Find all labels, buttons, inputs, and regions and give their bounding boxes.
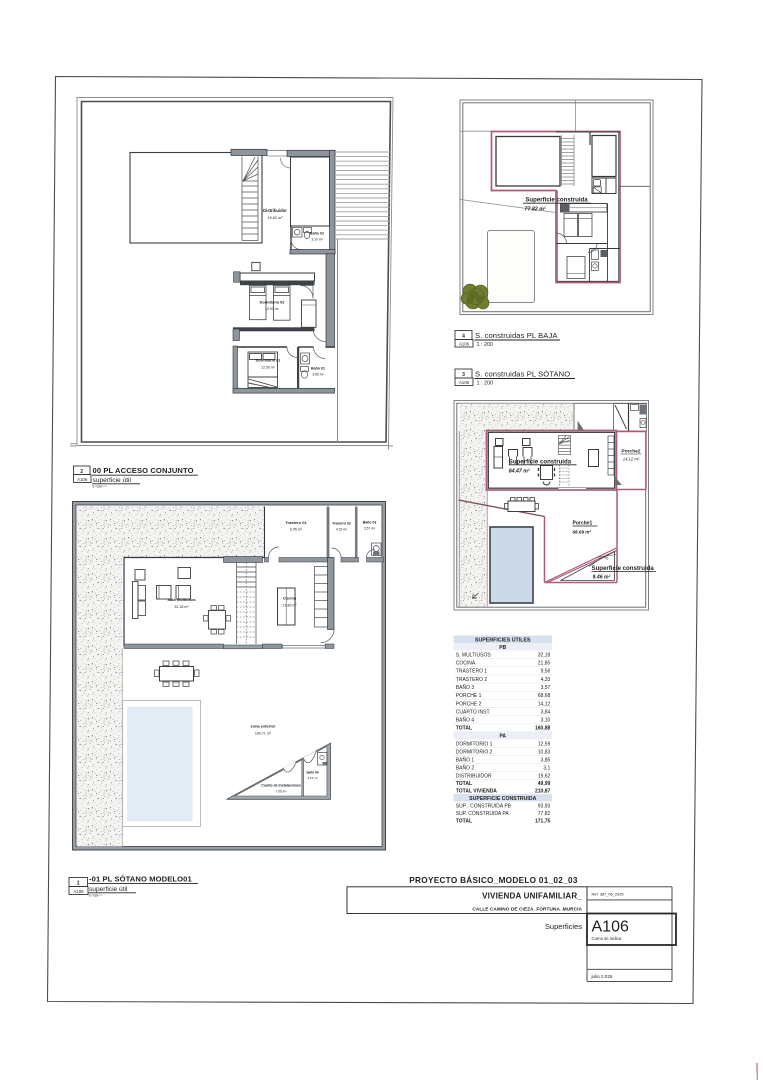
- svg-text:Cocina: Cocina: [283, 596, 297, 601]
- svg-text:PA: PA: [499, 733, 506, 739]
- svg-text:7.06 m²: 7.06 m²: [276, 790, 287, 794]
- svg-text:14,12: 14,12: [538, 701, 551, 707]
- svg-text:Distribuidor: Distribuidor: [263, 208, 287, 213]
- svg-text:TOTAL: TOTAL: [456, 725, 472, 731]
- svg-text:BAÑO 1: BAÑO 1: [456, 756, 475, 763]
- svg-text:baño 04: baño 04: [306, 771, 318, 775]
- svg-text:3: 3: [462, 372, 465, 378]
- svg-text:Dormitorio 01: Dormitorio 01: [256, 359, 281, 363]
- svg-text:S. MULTIUSOS: S. MULTIUSOS: [456, 652, 492, 658]
- svg-text:4.33 m²: 4.33 m²: [336, 528, 348, 532]
- svg-text:1 : 125: 1 : 125: [93, 485, 103, 489]
- svg-text:DORMITORIO 1: DORMITORIO 1: [456, 741, 493, 747]
- svg-text:TRASTERO 2: TRASTERO 2: [456, 677, 488, 683]
- svg-text:TOTAL: TOTAL: [456, 819, 472, 825]
- svg-text:32,18: 32,18: [538, 652, 551, 658]
- svg-text:2: 2: [80, 469, 83, 475]
- svg-text:9.95 m²: 9.95 m²: [290, 528, 303, 532]
- svg-text:Porche2: Porche2: [622, 449, 641, 455]
- svg-text:12,59: 12,59: [538, 741, 551, 747]
- svg-text:A106: A106: [592, 919, 629, 936]
- svg-text:julio 2,025: julio 2,025: [591, 974, 613, 979]
- svg-text:49,99: 49,99: [538, 781, 551, 787]
- svg-text:DISTRIBUIDOR: DISTRIBUIDOR: [456, 773, 492, 779]
- svg-text:SUP. CONSTRUIDA PA: SUP. CONSTRUIDA PA: [456, 811, 510, 817]
- svg-text:BAÑO 3: BAÑO 3: [456, 684, 475, 691]
- svg-text:171,75: 171,75: [535, 819, 551, 825]
- svg-text:Superficies: Superficies: [545, 922, 582, 931]
- svg-text:superficie útil: superficie útil: [93, 477, 132, 484]
- svg-text:Superficie construida: Superficie construida: [525, 196, 588, 203]
- svg-text:19.62 m²: 19.62 m²: [268, 216, 284, 220]
- svg-text:12.59 m²: 12.59 m²: [261, 366, 275, 370]
- svg-text:1 : 200: 1 : 200: [477, 381, 494, 387]
- svg-text:210,87: 210,87: [535, 788, 551, 794]
- svg-text:Baño 01: Baño 01: [311, 367, 325, 371]
- svg-text:PROYECTO BÁSICO_MODELO 01_02_0: PROYECTO BÁSICO_MODELO 01_02_03: [409, 875, 578, 885]
- svg-text:1 : 125: 1 : 125: [89, 894, 99, 898]
- svg-text:Superficie construida: Superficie construida: [509, 458, 572, 465]
- svg-text:PB: PB: [499, 645, 506, 651]
- svg-text:19,62: 19,62: [538, 773, 551, 779]
- svg-text:S. construidas PL BAJA: S. construidas PL BAJA: [475, 331, 558, 340]
- svg-text:14.12 m²: 14.12 m²: [623, 457, 640, 462]
- svg-text:3,1: 3,1: [543, 765, 550, 771]
- svg-text:TOTAL VIVIENDA: TOTAL VIVIENDA: [456, 788, 498, 794]
- svg-text:3.57 m²: 3.57 m²: [364, 527, 376, 531]
- svg-text:68.69 m²: 68.69 m²: [573, 530, 592, 535]
- svg-text:TOTAL: TOTAL: [456, 781, 472, 787]
- svg-text:COCINA: COCINA: [456, 661, 476, 667]
- svg-text:Como se indica: Como se indica: [592, 936, 622, 941]
- svg-text:10,83: 10,83: [538, 749, 551, 755]
- svg-text:3.10 m²: 3.10 m²: [311, 238, 323, 242]
- svg-text:77,82: 77,82: [538, 811, 551, 817]
- svg-text:93,93: 93,93: [538, 803, 551, 809]
- svg-text:zona exterior: zona exterior: [251, 724, 276, 729]
- svg-text:DORMITORIO 2: DORMITORIO 2: [456, 749, 493, 755]
- svg-text:10.93 m²: 10.93 m²: [265, 307, 279, 311]
- svg-text:Cuarto de Instalaciones: Cuarto de Instalaciones: [261, 784, 301, 788]
- svg-text:S. construidas PL SÓTANO: S. construidas PL SÓTANO: [475, 370, 570, 379]
- svg-text:A106: A106: [459, 380, 470, 385]
- svg-text:3,85: 3,85: [541, 757, 551, 763]
- svg-text:32.18 m²: 32.18 m²: [174, 605, 189, 609]
- svg-text:A106: A106: [77, 477, 88, 482]
- svg-text:Trastero 02: Trastero 02: [332, 522, 351, 526]
- svg-text:superficie útil: superficie útil: [89, 886, 128, 893]
- svg-text:160,88: 160,88: [535, 725, 551, 731]
- svg-text:A106: A106: [459, 341, 470, 346]
- svg-text:3,57: 3,57: [541, 685, 551, 691]
- svg-text:SUPERFICIES ÚTILES: SUPERFICIES ÚTILES: [475, 636, 531, 643]
- svg-text:189.71 m²: 189.71 m²: [255, 732, 272, 736]
- svg-text:VIVIENDA UNIFAMILIAR_: VIVIENDA UNIFAMILIAR_: [482, 891, 582, 900]
- svg-text:SUP . CONSTRUIDA PB: SUP . CONSTRUIDA PB: [456, 803, 512, 809]
- svg-text:3.85 m²: 3.85 m²: [312, 373, 324, 377]
- svg-text:9.46 m²: 9.46 m²: [593, 575, 611, 581]
- svg-text:Ref: 387_06_2025: Ref: 387_06_2025: [592, 891, 624, 896]
- svg-text:68,68: 68,68: [538, 693, 551, 699]
- svg-text:Trastero 01: Trastero 01: [285, 520, 307, 525]
- svg-text:3.16 m²: 3.16 m²: [307, 776, 317, 780]
- svg-text:TRASTERO 1: TRASTERO 1: [456, 669, 488, 675]
- svg-text:Baño 03: Baño 03: [363, 521, 377, 525]
- svg-text:3,84: 3,84: [541, 709, 551, 715]
- svg-text:CUARTO INST.: CUARTO INST.: [456, 709, 491, 715]
- svg-text:4,33: 4,33: [541, 677, 551, 683]
- svg-text:3,10: 3,10: [541, 718, 551, 724]
- svg-text:21,85: 21,85: [538, 661, 551, 667]
- svg-text:21.85 m²: 21.85 m²: [282, 604, 297, 608]
- svg-text:00 PL ACCESO CONJUNTO: 00 PL ACCESO CONJUNTO: [93, 466, 194, 475]
- svg-text:PORCHE 1: PORCHE 1: [456, 693, 482, 699]
- svg-text:Sala multiusos: Sala multiusos: [167, 597, 196, 602]
- svg-text:1 : 200: 1 : 200: [477, 342, 494, 348]
- svg-text:A106: A106: [73, 889, 84, 894]
- svg-text:Dormitorio 02: Dormitorio 02: [260, 301, 285, 305]
- svg-text:77.82 m²: 77.82 m²: [525, 207, 546, 213]
- svg-text:Baño 02: Baño 02: [310, 232, 324, 236]
- svg-text:PORCHE 2: PORCHE 2: [456, 701, 482, 707]
- svg-text:-01 PL SÓTANO MODELO01: -01 PL SÓTANO MODELO01: [89, 875, 192, 884]
- svg-text:SUPERFICIE CONSTRUIDA: SUPERFICIE CONSTRUIDA: [469, 796, 536, 802]
- svg-text:BAÑO 2: BAÑO 2: [456, 764, 475, 771]
- svg-text:Porche1: Porche1: [573, 521, 593, 527]
- svg-text:BAÑO 4: BAÑO 4: [456, 717, 475, 724]
- svg-text:1: 1: [77, 881, 80, 887]
- svg-text:CALLE CAMINO DE CIEZA_FORTUNA_: CALLE CAMINO DE CIEZA_FORTUNA_MURCIA: [472, 906, 582, 911]
- svg-text:9,56: 9,56: [541, 669, 551, 675]
- svg-text:84.47 m²: 84.47 m²: [509, 468, 530, 474]
- svg-text:4: 4: [462, 334, 465, 340]
